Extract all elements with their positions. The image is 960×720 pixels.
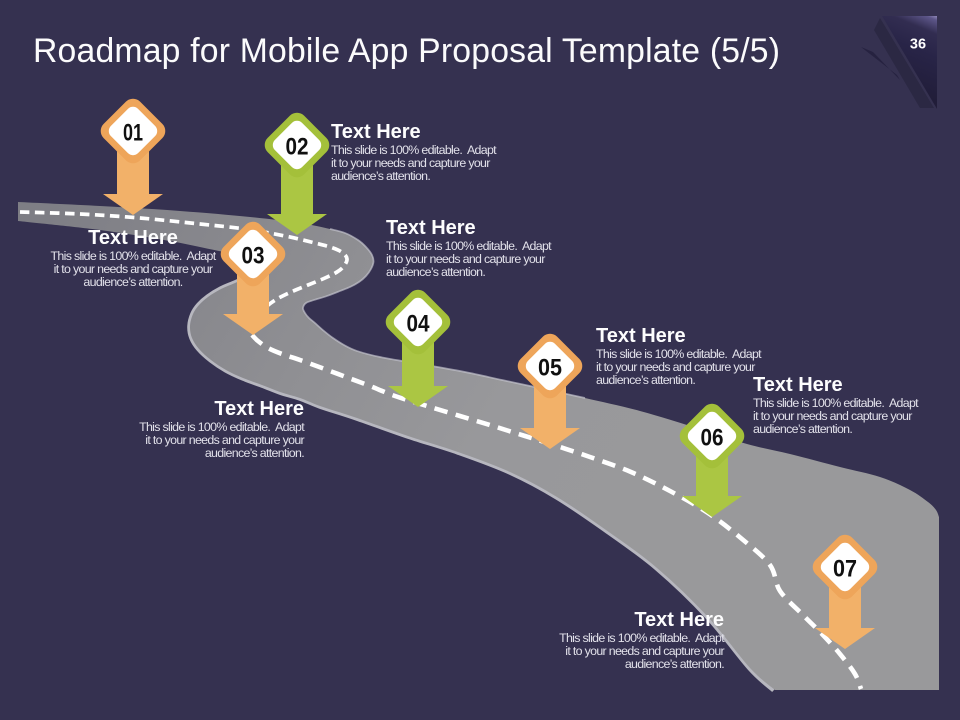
svg-text:06: 06: [701, 424, 724, 451]
svg-text:03: 03: [242, 242, 265, 269]
svg-text:36: 36: [910, 37, 926, 53]
svg-text:05: 05: [538, 354, 562, 381]
svg-text:02: 02: [286, 133, 309, 160]
svg-text:01: 01: [123, 119, 143, 146]
svg-text:04: 04: [407, 310, 431, 337]
svg-text:07: 07: [833, 555, 857, 582]
